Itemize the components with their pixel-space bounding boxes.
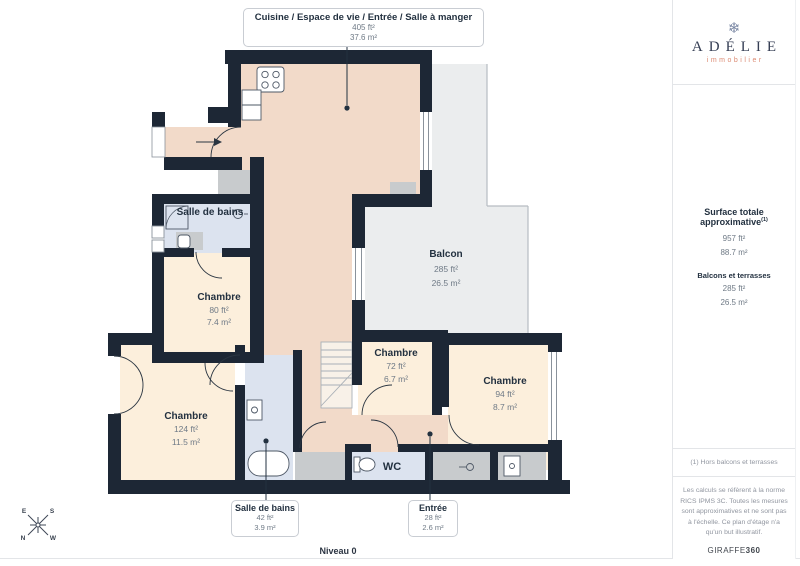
bathtub-icon [248, 451, 289, 476]
bedroom-right-ft: 94 ft² [495, 389, 515, 399]
bedroom-center-label: Chambre [374, 348, 418, 359]
bedroom-right-label: Chambre [483, 376, 527, 387]
bathroom-label-dot [263, 438, 268, 443]
surface-total-footnote-ref: (1) [761, 217, 768, 223]
brand-name: ADÉLIE [692, 39, 782, 56]
callout-bathroom-title: Salle de bains [232, 503, 298, 513]
bedroom-left-label: Chambre [164, 411, 208, 422]
living-label-dot [344, 105, 349, 110]
window-bedroom-right [548, 352, 562, 440]
bedroom-center-m: 6.7 m² [384, 374, 408, 384]
footnote: (1) Hors balcons et terrasses [673, 449, 795, 477]
callout-living-m: 37.6 m² [244, 33, 483, 43]
bedroom-small-label: Chambre [197, 292, 241, 303]
balconies-ft: 285 ft² [723, 282, 746, 296]
callout-entry-title: Entrée [409, 503, 457, 513]
compass-e: E [22, 508, 27, 515]
balcony-ft: 285 ft² [434, 264, 458, 274]
sliding-door-balcony [352, 248, 365, 300]
callout-living-title: Cuisine / Espace de vie / Entrée / Salle… [244, 12, 483, 23]
surface-total-m: 88.7 m² [720, 246, 747, 260]
front-door-opening [152, 127, 165, 157]
stove-icon [257, 67, 284, 92]
surface-total-ft: 957 ft² [723, 232, 746, 246]
compass-s: S [50, 508, 55, 515]
surface-total-title: Surface totale approximative(1) [673, 207, 795, 227]
callout-bathroom-ft: 42 ft² [232, 513, 298, 523]
bedroom-left-ft: 124 ft² [174, 424, 198, 434]
bathroom-top-label: Salle de bains [177, 207, 244, 218]
disclaimer-section: Les calculs se réfèrent à la norme RICS … [673, 477, 795, 557]
staircase [321, 342, 352, 408]
giraffe360-logo: GIRAFFE360 [679, 546, 789, 555]
giraffe360-bold: 360 [746, 546, 761, 555]
callout-entry-ft: 28 ft² [409, 513, 457, 523]
toilet-top-icon [178, 235, 190, 248]
callout-bathroom: Salle de bains 42 ft² 3.9 m² [231, 500, 299, 537]
surface-total-title-text: Surface totale approximative [700, 207, 764, 227]
window-bathroom-west [152, 226, 164, 252]
giraffe360-normal: GIRAFFE [707, 546, 745, 555]
callout-living: Cuisine / Espace de vie / Entrée / Salle… [243, 8, 484, 47]
compass-n: N [21, 535, 26, 542]
bedroom-right-m: 8.7 m² [493, 402, 517, 412]
bedroom-left-m: 11.5 m² [172, 437, 200, 447]
compass-rose-icon [28, 515, 48, 535]
callout-bathroom-m: 3.9 m² [232, 523, 298, 533]
sidebar: ❄ ADÉLIE immobilier Surface totale appro… [672, 0, 796, 559]
balcony-m: 26.5 m² [432, 278, 461, 288]
room-living-corridor-fill [262, 206, 352, 340]
callout-living-ft: 405 ft² [244, 23, 483, 33]
disclaimer-text: Les calculs se réfèrent à la norme RICS … [679, 486, 789, 539]
balcony-label: Balcon [429, 249, 462, 260]
kitchen-counter-icon [242, 90, 261, 120]
closet-1 [218, 170, 252, 194]
washbasin-bottom-icon [247, 400, 262, 420]
window-living-east [420, 112, 432, 170]
balconies-title: Balcons et terrasses [697, 271, 770, 280]
bedroom-center-ft: 72 ft² [386, 361, 406, 371]
surface-totals: Surface totale approximative(1) 957 ft² … [673, 85, 795, 449]
bedroom-small-ft: 80 ft² [209, 305, 229, 315]
wc-label: WC [383, 461, 401, 473]
snowflake-icon: ❄ [728, 21, 741, 36]
balcony-strip-fill [432, 64, 487, 206]
brand-logo: ❄ ADÉLIE immobilier [673, 0, 795, 85]
floor-plan-page: Salle de bains Chambre 80 ft² 7.4 m² Bal… [0, 0, 800, 566]
callout-entry-m: 2.6 m² [409, 523, 457, 533]
balconies-m: 26.5 m² [720, 296, 747, 310]
brand-tagline: immobilier [707, 57, 764, 64]
toilet-wc-icon [354, 457, 375, 472]
closet-4 [295, 452, 350, 482]
level-label: Niveau 0 [288, 546, 388, 556]
callout-entry: Entrée 28 ft² 2.6 m² [408, 500, 458, 537]
utility-sink-icon [504, 456, 520, 476]
compass-w: W [50, 535, 57, 542]
bedroom-small-m: 7.4 m² [207, 317, 231, 327]
entry-label-dot [427, 431, 432, 436]
